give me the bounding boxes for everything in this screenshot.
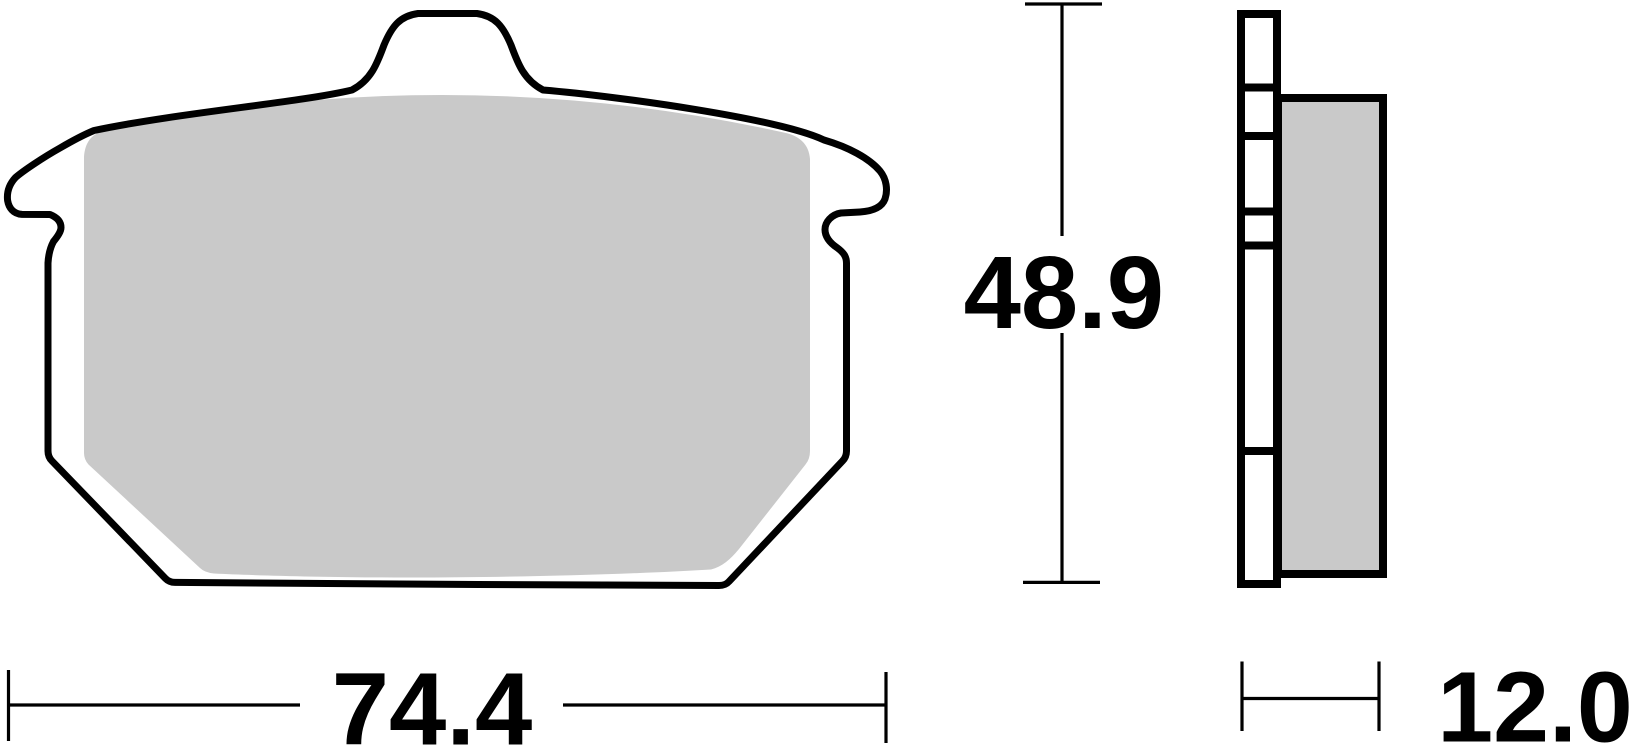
svg-text:12.0: 12.0 <box>1437 652 1629 745</box>
svg-text:48.9: 48.9 <box>964 235 1164 350</box>
svg-text:74.4: 74.4 <box>332 652 532 745</box>
